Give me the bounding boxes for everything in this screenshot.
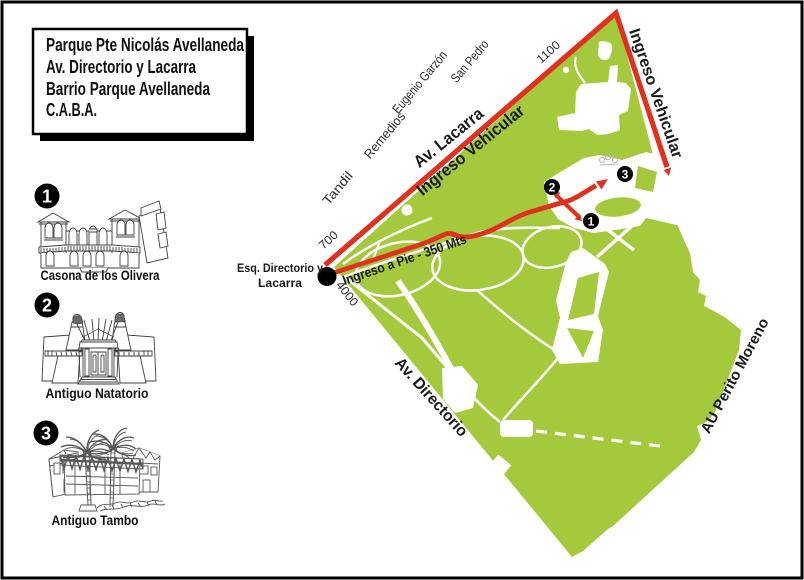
svg-text:3: 3 [41,424,51,444]
svg-text:2: 2 [549,181,556,195]
svg-text:3: 3 [622,168,629,182]
svg-text:Casona de los Olivera: Casona de los Olivera [41,267,160,283]
svg-text:Antiguo Natatorio: Antiguo Natatorio [46,385,149,401]
svg-text:2: 2 [42,296,52,316]
svg-text:Av. Directorio y Lacarra: Av. Directorio y Lacarra [46,57,197,77]
svg-text:Parque Pte Nicolás Avellaneda: Parque Pte Nicolás Avellaneda [46,35,245,55]
svg-text:Antiguo Tambo: Antiguo Tambo [52,512,139,528]
svg-text:1: 1 [588,215,595,229]
svg-text:Lacarra: Lacarra [258,276,302,290]
svg-text:C.A.B.A.: C.A.B.A. [46,100,97,120]
svg-text:Barrio Parque Avellaneda: Barrio Parque Avellaneda [46,79,211,99]
svg-text:1: 1 [42,187,52,207]
svg-text:Esq. Directorio y: Esq. Directorio y [237,261,323,275]
